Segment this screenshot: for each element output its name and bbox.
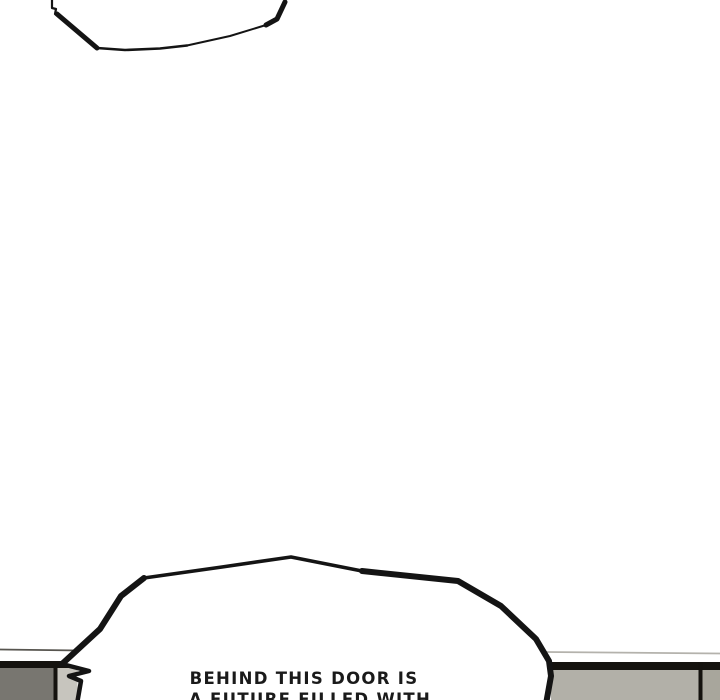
dialogue-line-1: BEHIND THIS DOOR IS xyxy=(190,669,419,688)
panel-art: BEHIND THIS DOOR IS A FUTURE FILLED WITH xyxy=(0,0,720,700)
right-wall-divider xyxy=(699,662,703,700)
dialogue-line-2: A FUTURE FILLED WITH xyxy=(189,690,431,700)
left-wall-divider xyxy=(54,668,58,700)
comic-panel: BEHIND THIS DOOR IS A FUTURE FILLED WITH xyxy=(0,0,720,700)
left-wall-face xyxy=(0,668,55,700)
right-wall-far-face xyxy=(703,670,720,700)
background-wall-line-left xyxy=(0,650,80,651)
right-wall-face xyxy=(551,670,720,700)
right-wall xyxy=(551,662,720,700)
right-wall-top-band xyxy=(551,662,720,670)
